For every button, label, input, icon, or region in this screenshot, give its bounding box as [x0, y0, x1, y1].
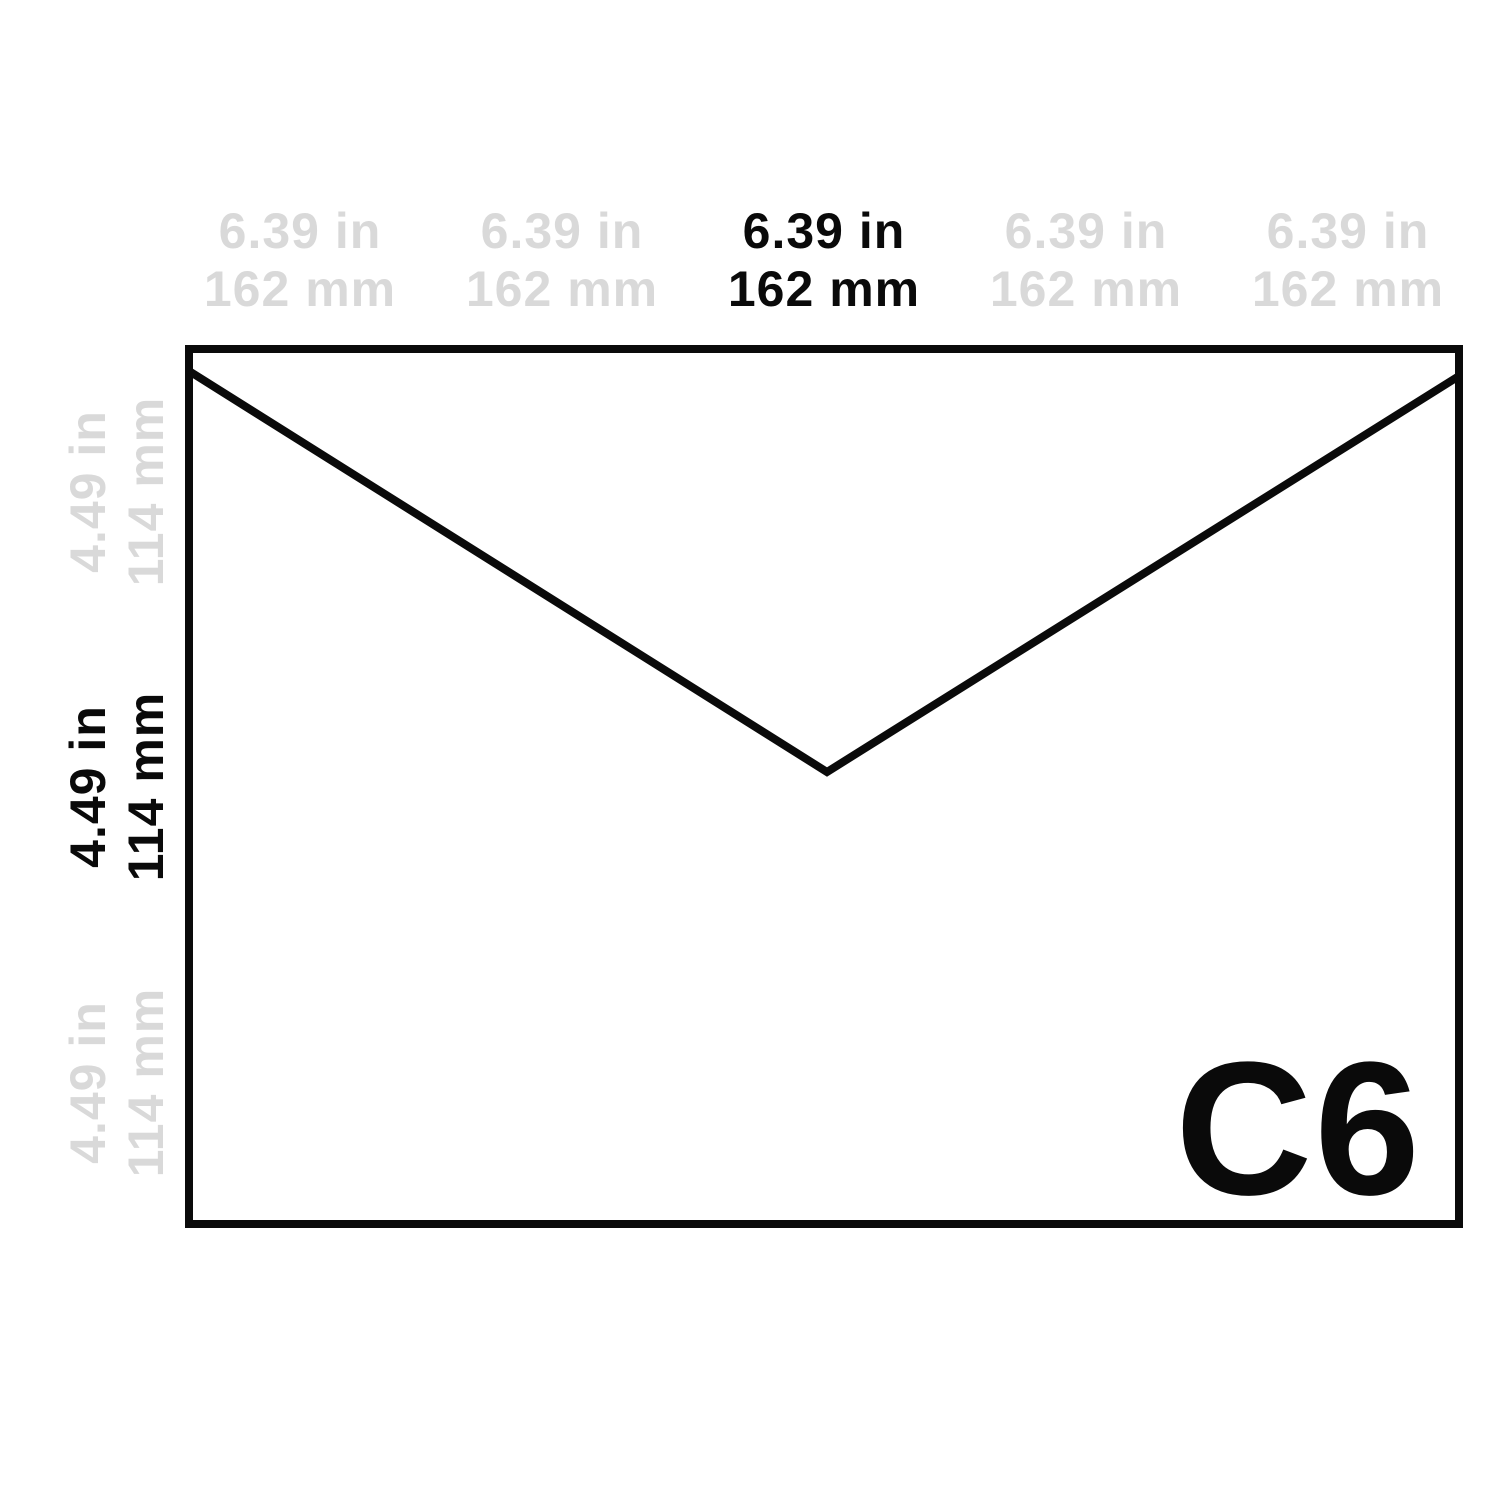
envelope-size-diagram: 6.39 in 162 mm 6.39 in 162 mm 6.39 in 16…	[0, 0, 1500, 1500]
width-label-3-millimeters: 162 mm	[709, 261, 939, 319]
height-label-2-emphasized: 4.49 in 114 mm	[61, 692, 176, 881]
width-label-3-emphasized: 6.39 in 162 mm	[709, 203, 939, 318]
width-label-5-inches: 6.39 in	[1233, 203, 1463, 261]
height-labels-column: 4.49 in 114 mm 4.49 in 114 mm 4.49 in 11…	[48, 345, 188, 1228]
width-label-4-millimeters: 162 mm	[971, 261, 1201, 319]
width-label-2-millimeters: 162 mm	[447, 261, 677, 319]
width-label-2: 6.39 in 162 mm	[447, 203, 677, 318]
width-label-5-millimeters: 162 mm	[1233, 261, 1463, 319]
width-label-1-millimeters: 162 mm	[185, 261, 415, 319]
width-labels-row: 6.39 in 162 mm 6.39 in 162 mm 6.39 in 16…	[185, 203, 1463, 333]
height-label-3-inches: 4.49 in	[61, 987, 119, 1176]
height-label-2-wrap: 4.49 in 114 mm	[48, 641, 188, 933]
height-label-1-millimeters: 114 mm	[118, 396, 176, 585]
width-label-1: 6.39 in 162 mm	[185, 203, 415, 318]
height-label-1-inches: 4.49 in	[61, 396, 119, 585]
height-label-1: 4.49 in 114 mm	[61, 396, 176, 585]
height-label-1-wrap: 4.49 in 114 mm	[48, 345, 188, 637]
height-label-3-millimeters: 114 mm	[118, 987, 176, 1176]
envelope-size-name: C6	[1175, 1034, 1422, 1224]
envelope-flap-lines	[189, 371, 1459, 772]
height-label-2-millimeters: 114 mm	[118, 692, 176, 881]
width-label-2-inches: 6.39 in	[447, 203, 677, 261]
height-label-3-wrap: 4.49 in 114 mm	[48, 936, 188, 1228]
height-label-2-inches: 4.49 in	[61, 692, 119, 881]
width-label-3-inches: 6.39 in	[709, 203, 939, 261]
width-label-5: 6.39 in 162 mm	[1233, 203, 1463, 318]
width-label-1-inches: 6.39 in	[185, 203, 415, 261]
width-label-4: 6.39 in 162 mm	[971, 203, 1201, 318]
height-label-3: 4.49 in 114 mm	[61, 987, 176, 1176]
width-label-4-inches: 6.39 in	[971, 203, 1201, 261]
